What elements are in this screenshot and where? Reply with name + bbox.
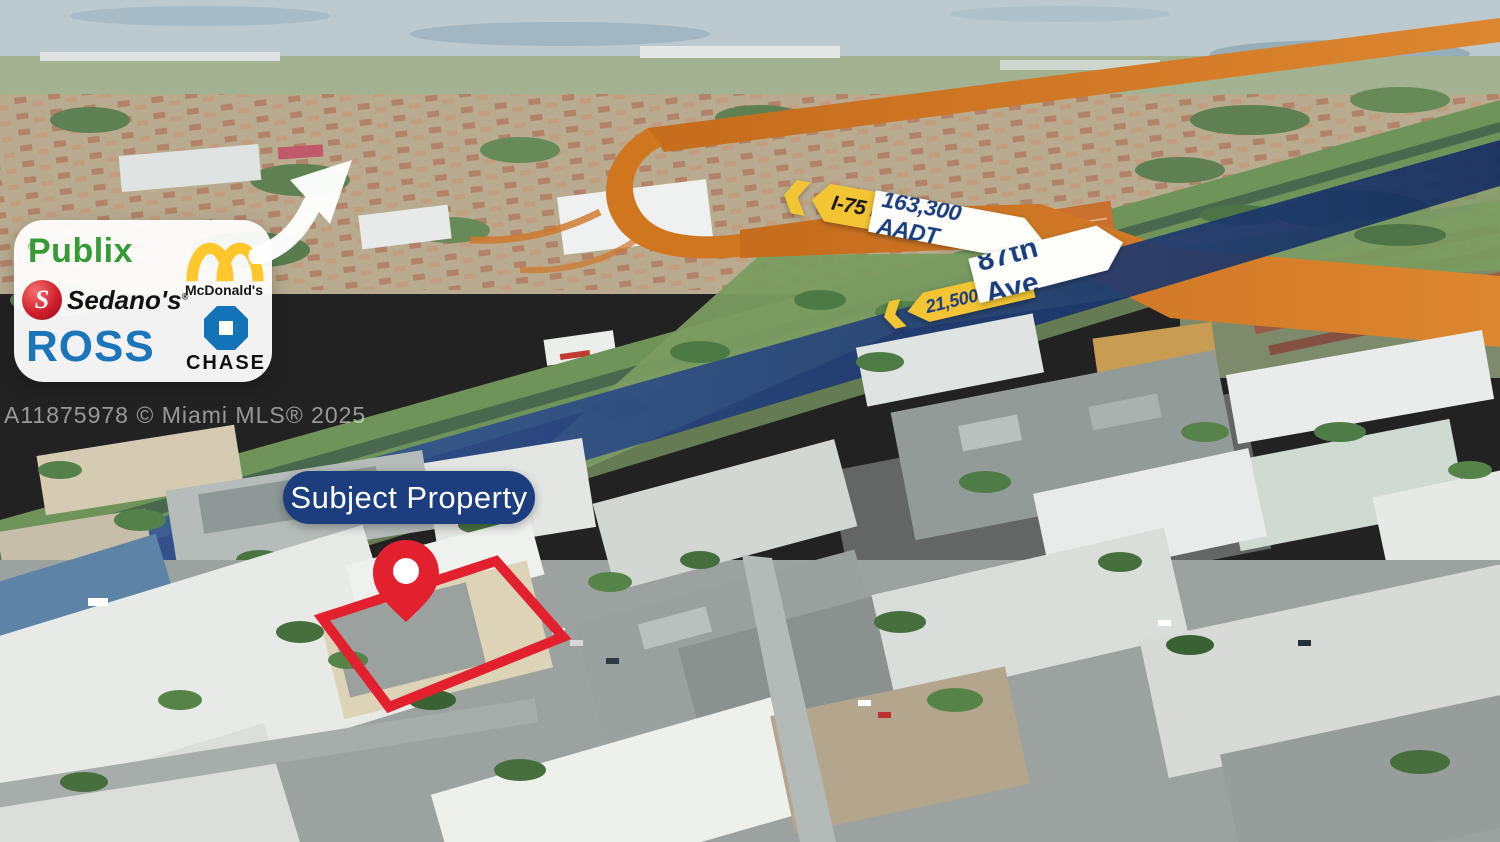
aerial-listing-image: A11875978 © Miami MLS® 2025 Publix® McDo…: [0, 0, 1500, 842]
retailer-logos-panel: Publix® McDonald's S Sedano's® ROSS CHAS…: [14, 220, 272, 382]
subject-property-label: Subject Property: [283, 471, 535, 524]
chase-octagon-icon: [202, 304, 250, 352]
mls-watermark: A11875978 © Miami MLS® 2025: [4, 402, 366, 429]
sedanos-s-icon: S: [22, 280, 62, 320]
ross-logo: ROSS: [26, 322, 155, 372]
publix-logo: Publix®: [28, 232, 36, 271]
direction-arrow-icon: [248, 146, 364, 264]
sedanos-logo: S Sedano's®: [22, 280, 188, 320]
chevron-left-icon: [781, 178, 811, 216]
sedanos-reg-mark: ®: [182, 291, 189, 301]
chase-logo: CHASE: [176, 352, 276, 375]
